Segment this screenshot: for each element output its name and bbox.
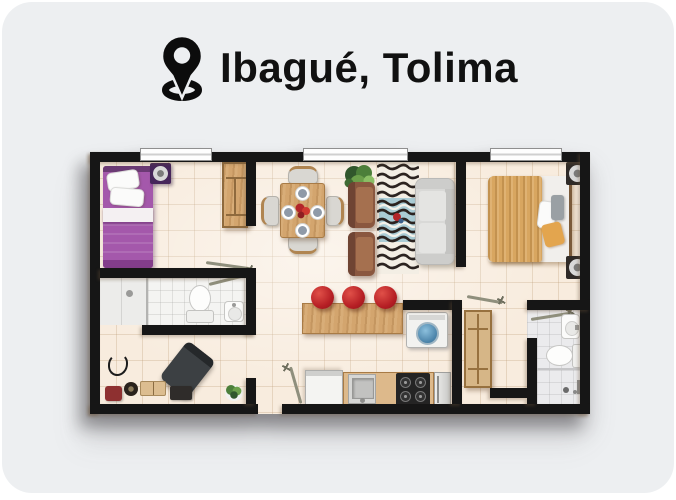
bathroom-sink — [561, 314, 580, 339]
location-title: Ibagué, Tolima — [220, 44, 518, 92]
window — [140, 148, 212, 161]
washing-machine — [406, 312, 448, 348]
record-disc — [124, 382, 138, 396]
wall-left — [90, 152, 100, 414]
bar-stool — [374, 286, 397, 309]
kitchen-sink — [348, 374, 376, 404]
bar-stool — [342, 286, 365, 309]
armchair — [348, 232, 375, 276]
bed-single — [103, 166, 153, 268]
desk-plant — [224, 381, 244, 401]
shower-head-icon — [126, 290, 133, 297]
gray-throw — [551, 195, 564, 220]
wardrobe — [222, 162, 248, 228]
window — [303, 148, 408, 161]
shower-drain-icon — [563, 387, 569, 393]
toilet — [546, 344, 582, 368]
zebra-rug — [377, 162, 419, 274]
stove — [396, 373, 430, 406]
shower-glass-line — [121, 278, 122, 325]
dining-chair — [261, 196, 279, 226]
toilet — [186, 285, 214, 324]
wall-right — [580, 152, 590, 414]
bar-stool — [311, 286, 334, 309]
wall-living-master — [456, 162, 466, 267]
sofa — [415, 178, 455, 265]
shower-1 — [100, 278, 148, 325]
open-book — [140, 381, 166, 396]
dining-table — [280, 183, 325, 238]
wall-bedroom1-right — [246, 162, 256, 226]
wall-bathroom2-left — [527, 338, 537, 404]
typewriter — [170, 386, 192, 400]
dishwasher — [305, 370, 343, 406]
flower-centerpiece — [293, 200, 313, 222]
window — [490, 148, 562, 161]
pillow — [109, 187, 144, 208]
location-header: Ibagué, Tolima — [0, 34, 676, 102]
shower-2-divider — [537, 368, 580, 370]
dining-chair — [326, 196, 344, 226]
wall-bathroom2-top — [527, 300, 590, 310]
nightstand — [150, 163, 171, 184]
wall-laundry-right — [452, 300, 462, 404]
wall-bottom — [282, 404, 590, 414]
bathroom-sink — [224, 301, 244, 322]
linen-closet — [464, 310, 492, 388]
wall-bedroom1-bottom — [100, 268, 256, 278]
wall-study-stub — [246, 378, 256, 404]
red-book — [105, 386, 122, 401]
location-pin-icon — [158, 34, 206, 102]
refrigerator — [434, 372, 451, 406]
bed-double — [488, 176, 572, 262]
wall-bottom — [90, 404, 258, 414]
dining-chair — [288, 236, 318, 254]
bathroom-2-entry — [527, 310, 537, 338]
dining-chair — [288, 166, 318, 184]
wall-hall-bottom — [490, 388, 527, 398]
wall-bathroom1-bottom — [142, 325, 256, 335]
armchair — [348, 182, 375, 228]
floorplan — [90, 152, 590, 414]
orange-pillow — [541, 221, 566, 248]
